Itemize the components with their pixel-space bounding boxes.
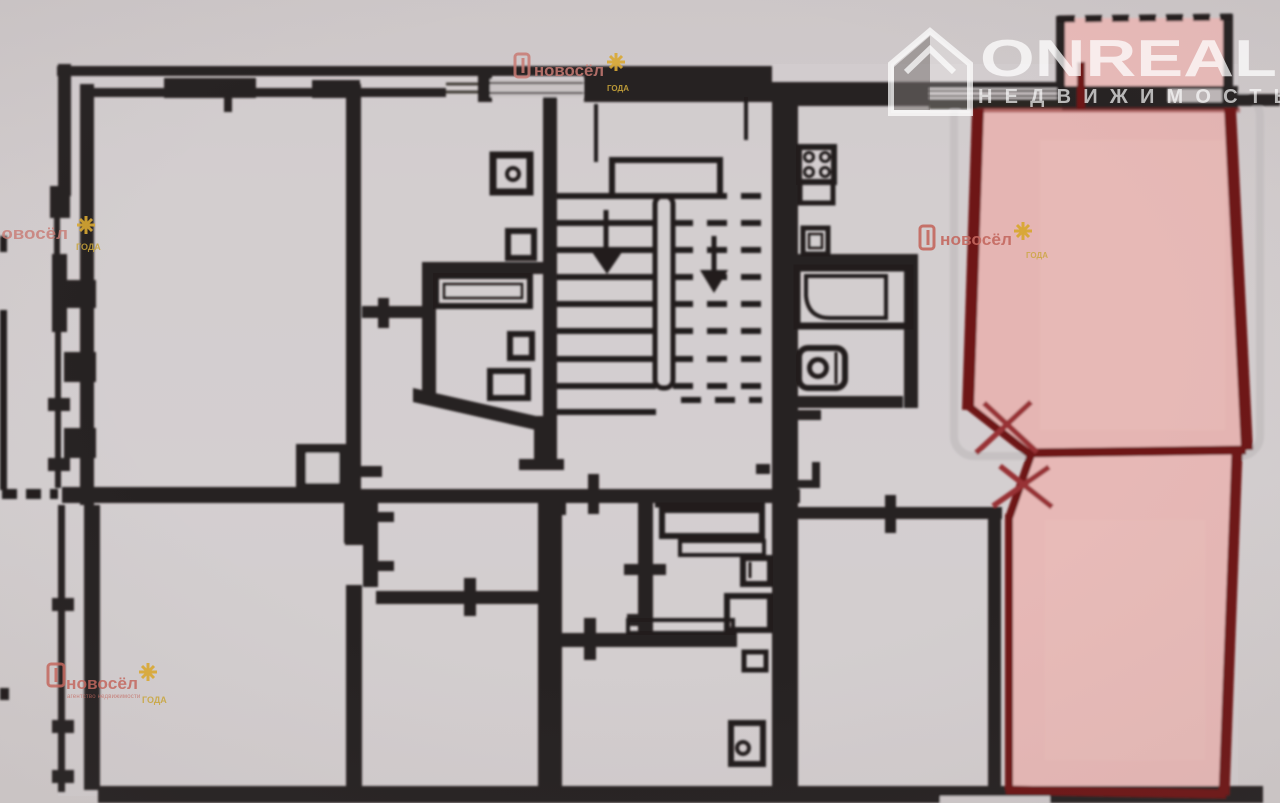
svg-text:ГОДА: ГОДА xyxy=(142,695,167,705)
svg-text:новосёл: новосёл xyxy=(66,674,138,693)
svg-text:ГОДА: ГОДА xyxy=(76,242,101,252)
svg-text:новосёл: новосёл xyxy=(940,230,1012,249)
svg-text:новосёл: новосёл xyxy=(0,224,68,243)
svg-text:ГОДА: ГОДА xyxy=(1026,251,1048,260)
svg-text:ONREAL: ONREAL xyxy=(980,30,1277,88)
svg-text:новосёл: новосёл xyxy=(534,61,604,80)
svg-text:агентство недвижимости: агентство недвижимости xyxy=(67,694,140,700)
svg-text:ГОДА: ГОДА xyxy=(607,84,629,93)
